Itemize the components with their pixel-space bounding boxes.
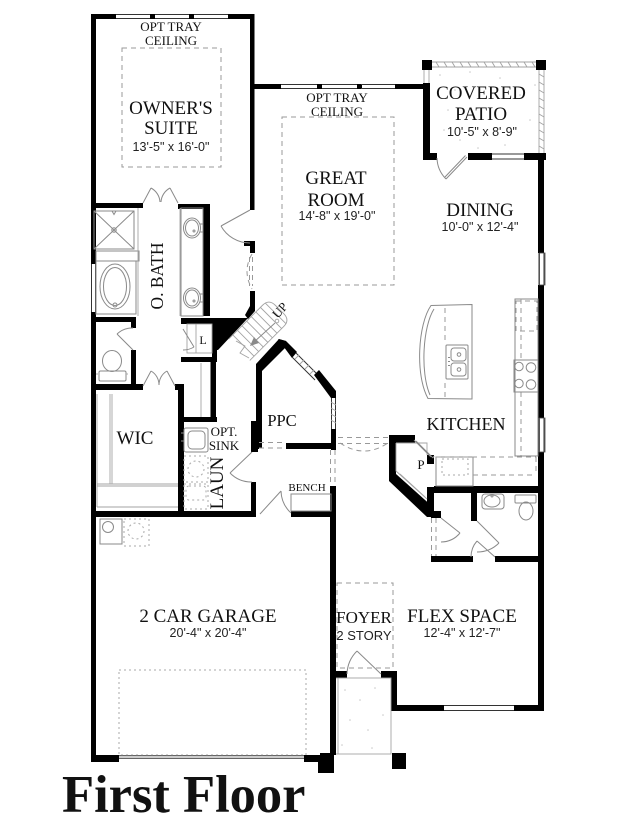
svg-text:OPT.: OPT. (211, 424, 238, 439)
svg-text:GREAT: GREAT (305, 168, 367, 189)
svg-text:20'-4" x 20'-4": 20'-4" x 20'-4" (170, 626, 247, 640)
svg-text:FOYER: FOYER (336, 608, 392, 627)
svg-text:OWNER'S: OWNER'S (129, 98, 213, 119)
svg-text:LAUN: LAUN (207, 456, 228, 509)
svg-text:13'-5" x 16'-0": 13'-5" x 16'-0" (133, 140, 210, 154)
svg-text:2 STORY: 2 STORY (336, 628, 391, 643)
svg-text:PATIO: PATIO (455, 104, 507, 125)
svg-text:CEILING: CEILING (145, 33, 197, 48)
svg-text:BENCH: BENCH (288, 482, 325, 494)
svg-text:2 CAR GARAGE: 2 CAR GARAGE (139, 606, 276, 627)
svg-text:FLEX SPACE: FLEX SPACE (407, 606, 517, 627)
svg-text:SUITE: SUITE (144, 118, 198, 139)
svg-text:CEILING: CEILING (311, 104, 363, 119)
svg-text:O. BATH: O. BATH (147, 242, 167, 309)
svg-text:PPC: PPC (267, 411, 296, 430)
svg-text:COVERED: COVERED (436, 83, 526, 104)
svg-text:ROOM: ROOM (307, 190, 364, 211)
svg-text:12'-4" x 12'-7": 12'-4" x 12'-7" (424, 626, 501, 640)
svg-text:L: L (199, 333, 206, 347)
svg-text:DINING: DINING (446, 200, 514, 221)
svg-text:14'-8" x 19'-0": 14'-8" x 19'-0" (299, 209, 376, 223)
svg-text:OPT TRAY: OPT TRAY (140, 19, 202, 34)
svg-text:KITCHEN: KITCHEN (427, 414, 506, 434)
svg-text:OPT TRAY: OPT TRAY (306, 90, 368, 105)
svg-text:10'-0" x 12'-4": 10'-0" x 12'-4" (442, 220, 519, 234)
svg-text:First Floor: First Floor (62, 766, 305, 824)
svg-text:WIC: WIC (117, 428, 154, 449)
svg-text:10'-5" x 8'-9": 10'-5" x 8'-9" (447, 125, 517, 139)
svg-text:P: P (417, 457, 424, 472)
svg-text:SINK: SINK (209, 438, 240, 453)
